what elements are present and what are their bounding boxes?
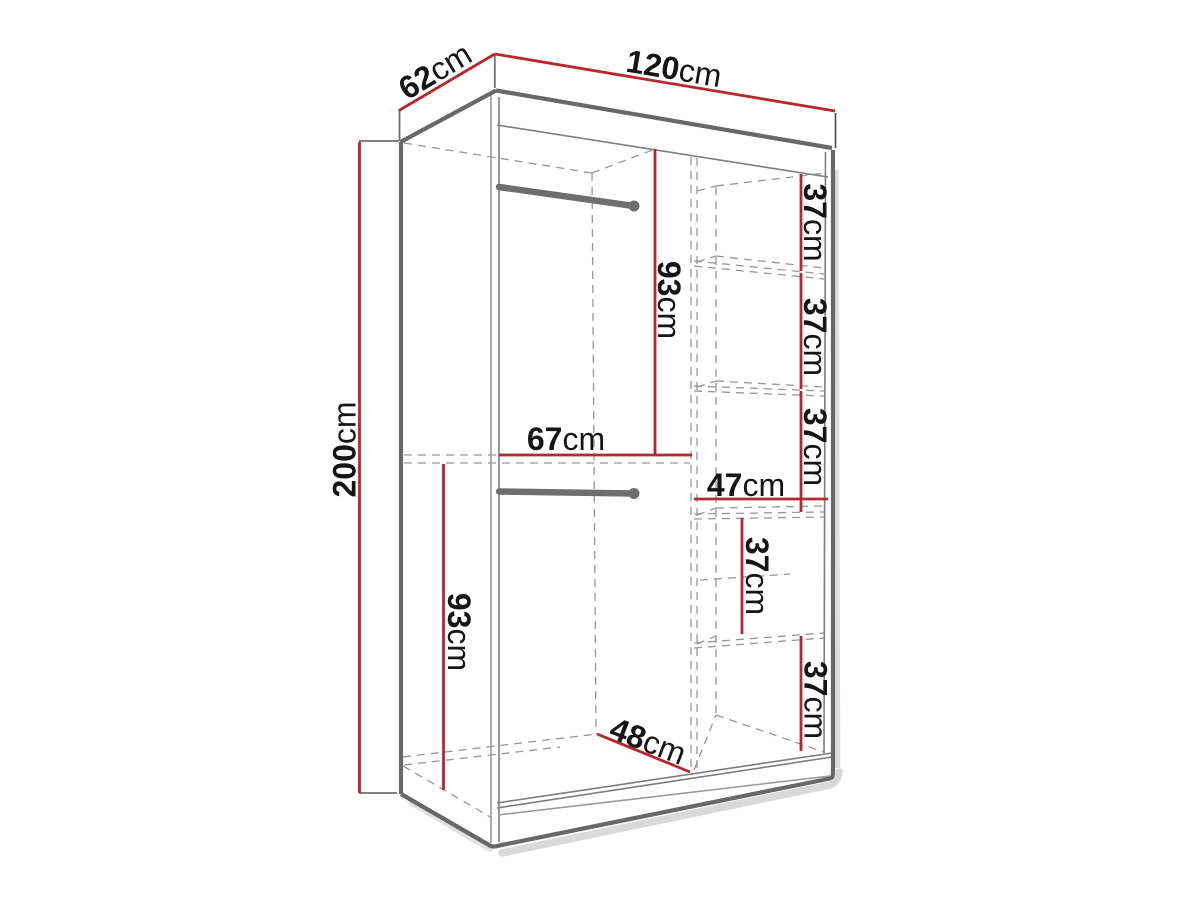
- svg-text:37cm: 37cm: [797, 298, 833, 376]
- svg-text:67cm: 67cm: [527, 421, 605, 457]
- svg-text:200cm: 200cm: [327, 401, 363, 497]
- svg-text:47cm: 47cm: [707, 467, 785, 503]
- svg-text:37cm: 37cm: [798, 661, 834, 739]
- svg-text:93cm: 93cm: [651, 261, 687, 339]
- svg-text:37cm: 37cm: [797, 183, 833, 261]
- svg-text:93cm: 93cm: [441, 593, 477, 671]
- svg-text:37cm: 37cm: [739, 537, 775, 615]
- svg-text:37cm: 37cm: [797, 408, 833, 486]
